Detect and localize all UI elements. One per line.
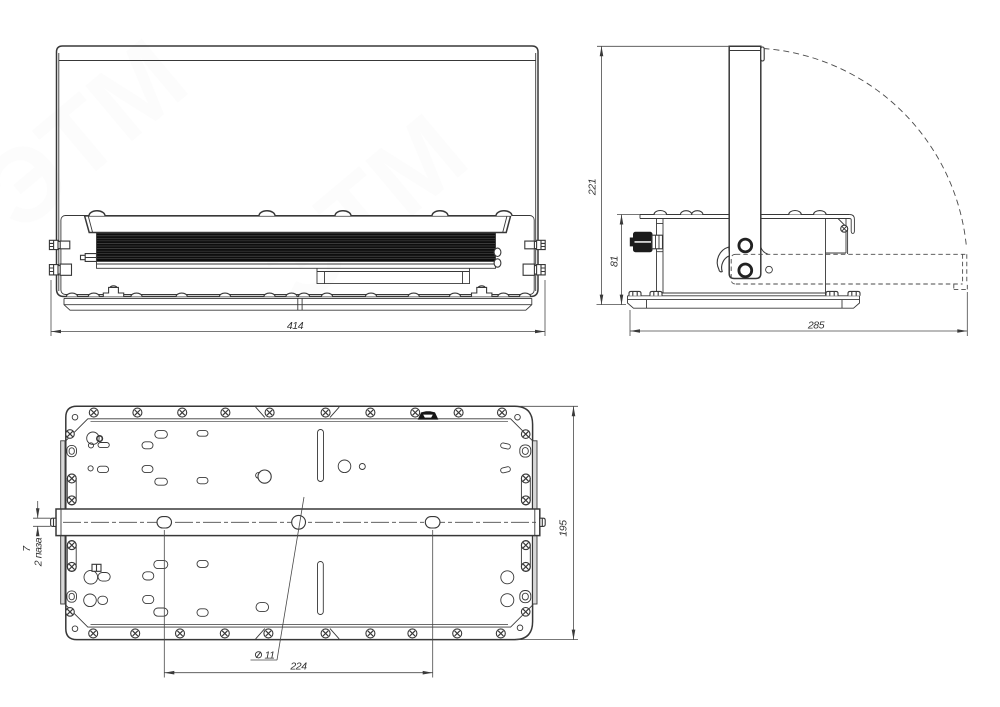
svg-text:224: 224 (289, 661, 307, 673)
svg-text:221: 221 (587, 179, 599, 196)
svg-text:195: 195 (558, 520, 570, 537)
svg-text:11: 11 (265, 650, 275, 662)
svg-text:2 паза: 2 паза (33, 537, 45, 567)
svg-text:285: 285 (807, 320, 825, 332)
svg-text:414: 414 (287, 320, 304, 332)
svg-text:81: 81 (609, 256, 621, 267)
